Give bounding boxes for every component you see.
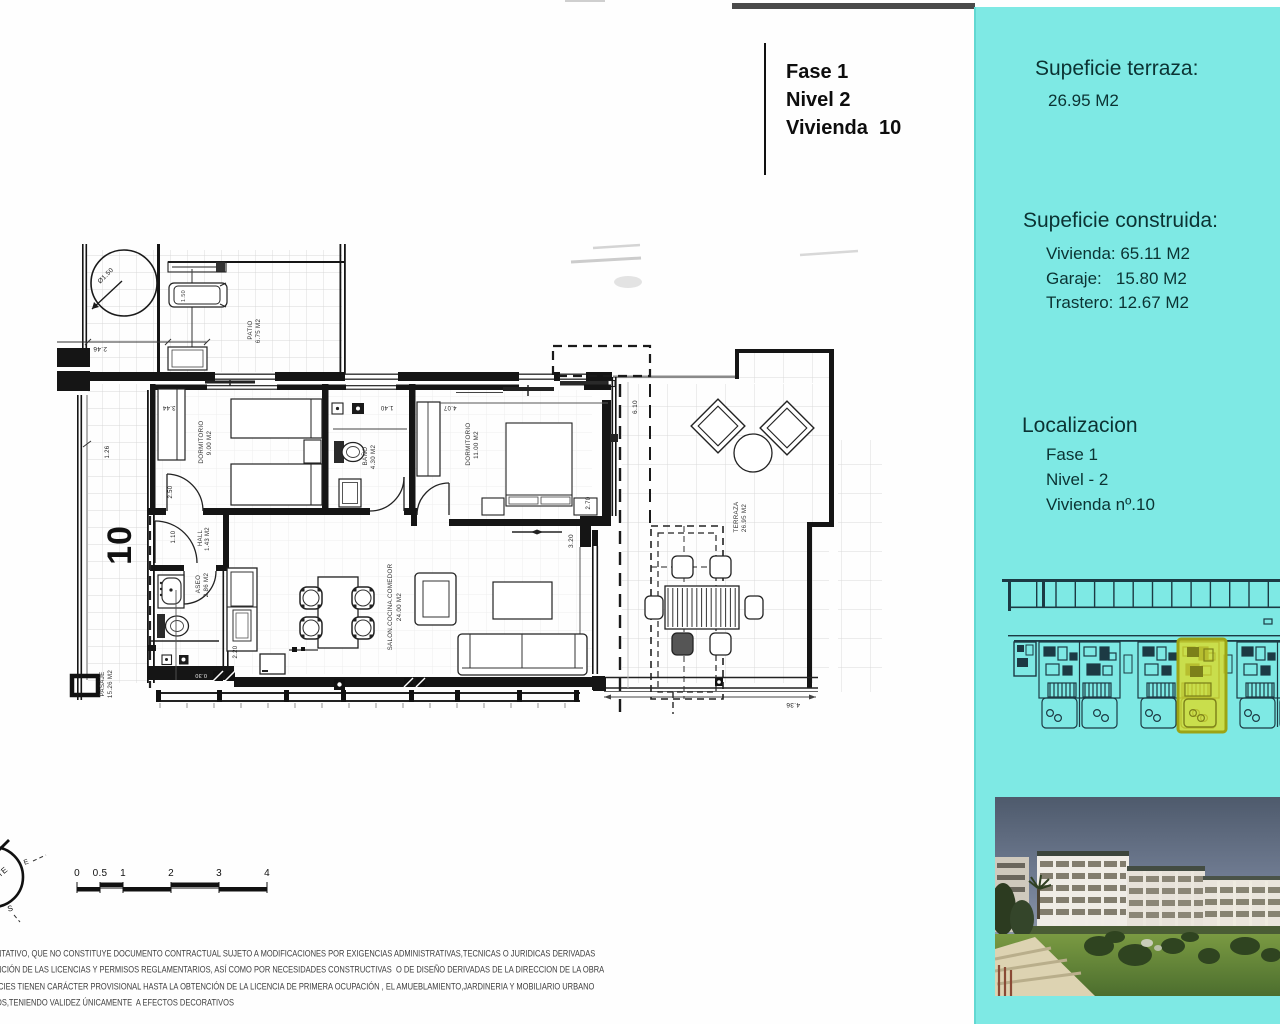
svg-text:6.10: 6.10 xyxy=(632,400,639,414)
svg-text:6.75 M2: 6.75 M2 xyxy=(255,319,262,344)
svg-text:1.43 M2: 1.43 M2 xyxy=(205,527,211,551)
svg-text:SALON.COCINA.COMEDOR: SALON.COCINA.COMEDOR xyxy=(387,563,394,650)
svg-text:4.36: 4.36 xyxy=(786,701,800,708)
svg-text:1.40: 1.40 xyxy=(380,404,393,410)
svg-text:E: E xyxy=(23,858,30,866)
svg-text:4.30 M2: 4.30 M2 xyxy=(370,445,377,470)
svg-text:0: 0 xyxy=(74,868,80,879)
svg-text:3: 3 xyxy=(216,868,222,879)
svg-text:0.30: 0.30 xyxy=(195,672,207,678)
svg-text:4.07: 4.07 xyxy=(443,404,456,410)
svg-text:11.00 M2: 11.00 M2 xyxy=(473,431,480,459)
svg-text:2: 2 xyxy=(168,868,174,879)
svg-text:2.86 M2: 2.86 M2 xyxy=(203,573,210,598)
svg-text:0.5: 0.5 xyxy=(93,868,108,879)
svg-text:2.20: 2.20 xyxy=(233,645,239,658)
svg-text:1: 1 xyxy=(120,868,126,879)
svg-text:3.20: 3.20 xyxy=(568,534,575,548)
svg-text:15.26 M2: 15.26 M2 xyxy=(107,670,114,698)
svg-text:TERRAZA: TERRAZA xyxy=(733,501,740,533)
svg-text:PASAJE: PASAJE xyxy=(99,671,106,696)
svg-text:9.00 M2: 9.00 M2 xyxy=(206,431,213,456)
svg-text:DORMITORIO: DORMITORIO xyxy=(465,422,472,465)
svg-text:2.50: 2.50 xyxy=(168,485,174,498)
svg-text:S: S xyxy=(6,904,14,914)
svg-text:1.26: 1.26 xyxy=(105,445,111,458)
svg-text:HALL: HALL xyxy=(198,530,204,547)
svg-text:DORMITORIO: DORMITORIO xyxy=(198,420,205,463)
svg-text:24.00 M2: 24.00 M2 xyxy=(396,593,403,621)
svg-text:TE: TE xyxy=(0,865,9,879)
svg-text:26.95 M2: 26.95 M2 xyxy=(741,504,748,532)
svg-text:1.50: 1.50 xyxy=(181,290,187,302)
svg-text:10: 10 xyxy=(101,525,139,565)
svg-text:4: 4 xyxy=(264,868,270,879)
svg-text:BAÑO: BAÑO xyxy=(362,447,369,466)
svg-text:ASEO: ASEO xyxy=(195,575,202,593)
svg-text:2.46: 2.46 xyxy=(93,345,107,352)
svg-text:2.70: 2.70 xyxy=(586,496,592,509)
svg-text:3.44: 3.44 xyxy=(162,404,175,410)
svg-text:1.10: 1.10 xyxy=(171,530,177,543)
svg-text:PATIO: PATIO xyxy=(247,320,254,339)
